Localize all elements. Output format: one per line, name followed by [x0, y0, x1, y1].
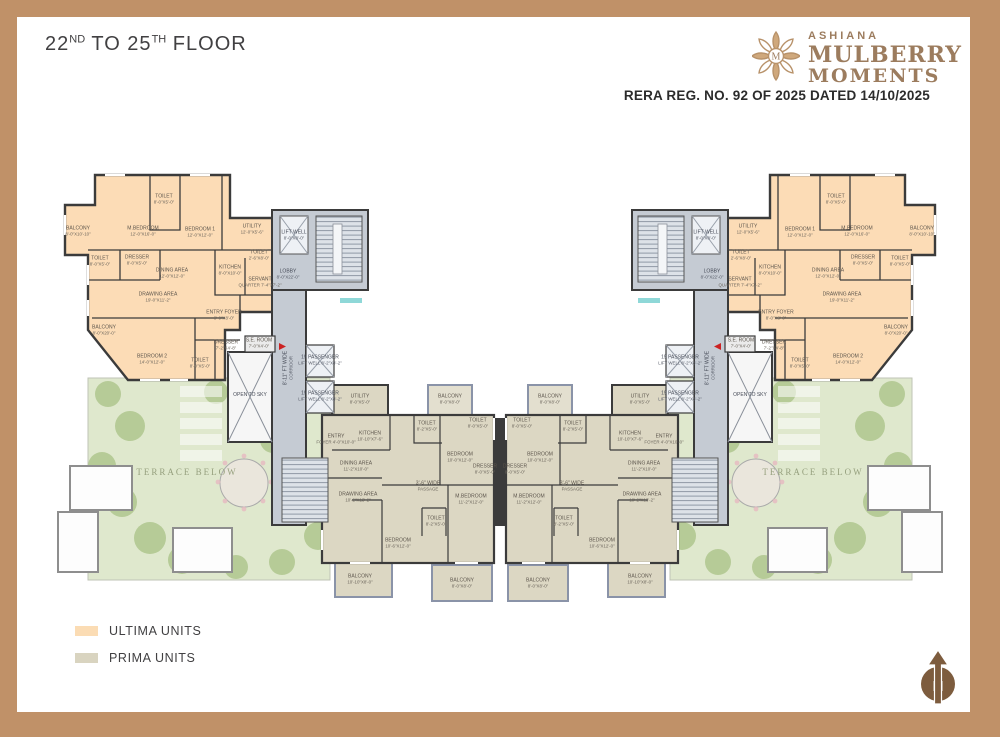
room-label: DRAWING AREA10'-2"X13'-2" — [623, 493, 662, 504]
brand-line1: MULBERRY — [808, 44, 962, 66]
room-label: DRESSER8'-0"X5'-0" — [473, 465, 497, 476]
room-label: S.E. ROOM7'-0"X4'-0" — [728, 339, 754, 350]
room-label: KITCHEN10'-10"X7'-6" — [357, 432, 382, 443]
room-label: ENTRYFOYER 4'-0"X10'-0" — [316, 435, 355, 446]
room-label: DRAWING AREA19'-0"X11'-2" — [139, 293, 178, 304]
room-label: 19 PASSENGERLIFT WELL 8'-2"X8'-2" — [298, 392, 342, 403]
room-label: UTILITY8'-0"X5'-0" — [350, 395, 370, 406]
room-label: DRESSER7'-2"X4'-8" — [214, 341, 238, 352]
terrace-below-label: TERRACE BELOW — [762, 467, 863, 477]
room-label: DINING AREA11'-2"X10'-0" — [628, 462, 660, 473]
room-label: TOILET8'-2"X5'-0" — [563, 422, 583, 433]
room-label: 19 PASSENGERLIFT WELL 8'-2"X8'-2" — [658, 356, 702, 367]
rera-registration-text: RERA REG. NO. 92 OF 2025 DATED 14/10/202… — [624, 88, 930, 103]
room-label: BEDROOM 112'-0"X12'-0" — [185, 228, 215, 239]
room-label: DINING AREA12'-0"X12'-0" — [812, 269, 844, 280]
room-label: 8'-11" FT WIDECORRIDOR — [706, 351, 717, 385]
terrace-below-label: TERRACE BELOW — [136, 467, 237, 477]
mulberry-flower-icon: M — [752, 30, 800, 87]
room-label: BALCONY8'-0"X10'-10" — [65, 227, 90, 238]
north-compass: N Not to scale — [908, 648, 968, 725]
room-label: KITCHEN10'-10"X7'-6" — [617, 432, 642, 443]
room-label: TOILET8'-0"X5'-0" — [190, 359, 210, 370]
room-label: S.E. ROOM7'-0"X4'-0" — [246, 339, 272, 350]
room-label: TOILET2'-6"X8'-0" — [249, 251, 269, 262]
brand-line2: MOMENTS — [808, 67, 962, 86]
room-label: TOILET8'-0"X5'-0" — [826, 195, 846, 206]
room-label: DRAWING AREA10'-2"X13'-2" — [339, 493, 378, 504]
room-label: OPEN TO SKY — [733, 393, 767, 399]
room-label: TOILET8'-2"X5'-0" — [417, 422, 437, 433]
room-label: BEDROOM10'-0"X12'-0" — [527, 453, 553, 464]
room-label: BALCONY10'-10"X8'-0" — [347, 575, 372, 586]
page-title: 22ND TO 25TH FLOOR — [45, 33, 247, 56]
room-label: DINING AREA12'-0"X12'-0" — [156, 269, 188, 280]
brand-name: ASHIANA — [808, 31, 962, 42]
room-label: BEDROOM10'-6"X12'-0" — [385, 539, 411, 550]
room-label: M.BEDROOM11'-2"X12'-0" — [513, 495, 544, 506]
room-label: BALCONY8'-0"X8'-0" — [538, 395, 562, 406]
room-label: DRESSER8'-0"X5'-0" — [851, 256, 875, 267]
room-label: 19 PASSENGERLIFT WELL 8'-2"X8'-2" — [658, 392, 702, 403]
not-to-scale-note: Not to scale — [908, 716, 968, 725]
room-label: TOILET8'-0"X5'-0" — [154, 195, 174, 206]
room-label: LOBBY8'-0"X22'-0" — [277, 270, 300, 281]
room-label: KITCHEN8'-0"X10'-0" — [759, 266, 782, 277]
legend-item-ultima: ULTIMA UNITS — [75, 624, 201, 638]
ultima-swatch — [75, 626, 98, 636]
room-label: M.BEDROOM11'-2"X12'-0" — [455, 495, 486, 506]
room-label: BEDROOM10'-6"X12'-0" — [589, 539, 615, 550]
room-labels-layer: BALCONY8'-0"X10'-10"M.BEDROOM12'-0"X16'-… — [30, 140, 970, 610]
room-label: BALCONY8'-0"X8'-0" — [526, 579, 550, 590]
room-label: DRESSER7'-2"X4'-8" — [762, 341, 786, 352]
room-label: BEDROOM10'-0"X12'-0" — [447, 453, 473, 464]
north-arrow-icon: N — [910, 648, 966, 710]
room-label: M.BEDROOM12'-0"X16'-0" — [841, 227, 872, 238]
legend-item-prima: PRIMA UNITS — [75, 651, 201, 665]
room-label: ENTRY FOYER8'-0"X8'-0" — [206, 311, 241, 322]
room-label: LIFT WELL8'-0"X8'-0" — [281, 231, 306, 242]
room-label: SERVANTQUARTER 7'-4"X7'-2" — [238, 278, 281, 289]
room-label: BEDROOM 214'-0"X12'-0" — [137, 355, 167, 366]
room-label: LIFT WELL8'-0"X8'-0" — [693, 231, 718, 242]
room-label: LOBBY8'-0"X22'-0" — [701, 270, 724, 281]
room-label: M.BEDROOM12'-0"X16'-0" — [127, 227, 158, 238]
room-label: DRAWING AREA19'-0"X11'-2" — [823, 293, 862, 304]
room-label: OPEN TO SKY — [233, 393, 267, 399]
room-label: KITCHEN8'-0"X10'-0" — [219, 266, 242, 277]
room-label: TOILET8'-0"X5'-0" — [512, 419, 532, 430]
room-label: UTILITY12'-0"X5'-6" — [737, 225, 760, 236]
brochure-page: 22ND TO 25TH FLOOR M — [0, 0, 1000, 737]
floor-plan: BALCONY8'-0"X10'-10"M.BEDROOM12'-0"X16'-… — [30, 140, 970, 610]
room-label: TOILET8'-2"X5'-0" — [554, 517, 574, 528]
room-label: 19 PASSENGERLIFT WELL 8'-2"X8'-2" — [298, 356, 342, 367]
room-label: DRESSER8'-0"X5'-0" — [125, 256, 149, 267]
prima-label: PRIMA UNITS — [109, 651, 195, 665]
room-label: TOILET8'-2"X5'-0" — [426, 517, 446, 528]
room-label: TOILET8'-0"X5'-0" — [790, 359, 810, 370]
room-label: BALCONY8'-0"X10'-10" — [909, 227, 934, 238]
room-label: ENTRY FOYER8'-0"X8'-0" — [758, 311, 793, 322]
room-label: TOILET8'-0"X5'-0" — [90, 257, 110, 268]
room-label: BALCONY8'-0"X8'-0" — [438, 395, 462, 406]
room-label: TOILET8'-0"X5'-0" — [468, 419, 488, 430]
room-label: BALCONY8'-0"X8'-0" — [450, 579, 474, 590]
room-label: ENTRYFOYER 4'-0"X10'-0" — [644, 435, 683, 446]
room-label: 8'-11" FT WIDECORRIDOR — [284, 351, 295, 385]
room-label: TOILET8'-0"X5'-0" — [890, 257, 910, 268]
prima-swatch — [75, 653, 98, 663]
room-label: DRESSER8'-0"X5'-0" — [503, 465, 527, 476]
room-label: BEDROOM 112'-0"X12'-0" — [785, 228, 815, 239]
room-label: TOILET2'-6"X8'-0" — [731, 251, 751, 262]
brand-logo: M ASHIANA MULBERRY MOMENTS — [752, 30, 962, 87]
room-label: UTILITY12'-0"X5'-6" — [241, 225, 264, 236]
svg-text:M: M — [772, 52, 781, 63]
room-label: SERVANTQUARTER 7'-4"X7'-2" — [718, 278, 761, 289]
room-label: UTILITY8'-0"X5'-0" — [630, 395, 650, 406]
room-label: BALCONY10'-10"X8'-0" — [627, 575, 652, 586]
room-label: BALCONY8'-0"X20'-0" — [92, 326, 116, 337]
room-label: 3'-6" WIDEPASSAGE — [560, 482, 584, 493]
room-label: BEDROOM 214'-0"X12'-0" — [833, 355, 863, 366]
room-label: DINING AREA11'-2"X10'-0" — [340, 462, 372, 473]
room-label: 3'-6" WIDEPASSAGE — [416, 482, 440, 493]
ultima-label: ULTIMA UNITS — [109, 624, 201, 638]
legend: ULTIMA UNITS PRIMA UNITS — [75, 624, 201, 665]
room-label: BALCONY8'-0"X20'-0" — [884, 326, 908, 337]
